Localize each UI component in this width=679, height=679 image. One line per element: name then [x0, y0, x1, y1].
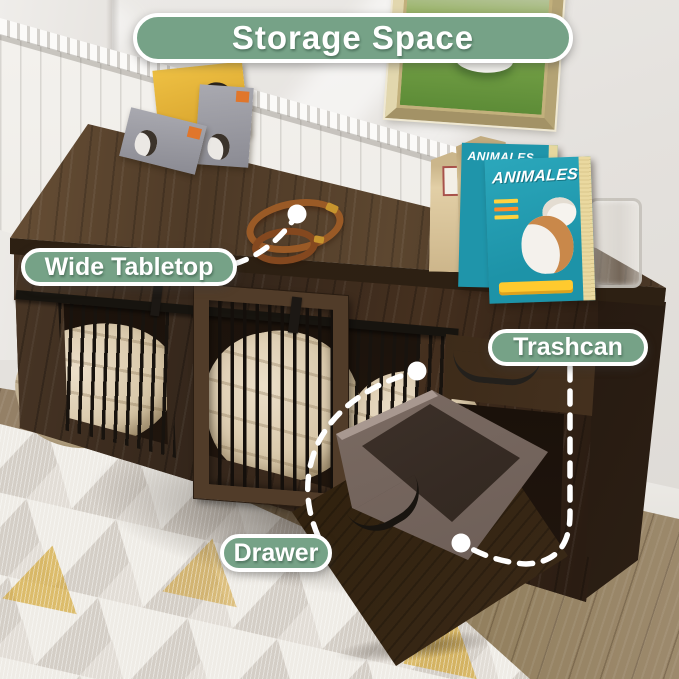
- wide-tabletop-arrow: [234, 219, 294, 264]
- callout-drawer: Drawer: [220, 534, 332, 572]
- tabletop-pointer-dot: [288, 205, 307, 224]
- banner-text: Storage Space: [232, 19, 474, 57]
- callout-text: Wide Tabletop: [45, 253, 214, 282]
- trashcan-arrow: [470, 367, 570, 564]
- callout-text: Trashcan: [513, 333, 623, 362]
- drawer-arrow: [308, 375, 404, 536]
- drawer-pointer-dot: [408, 362, 427, 381]
- callout-wide-tabletop: Wide Tabletop: [21, 248, 237, 286]
- callout-text: Drawer: [234, 539, 319, 568]
- product-annotation-image: ANIMALES ANIMALES Storage Space Wide Tab…: [0, 0, 679, 679]
- callout-trashcan: Trashcan: [488, 329, 648, 366]
- trashcan-pointer-dot: [452, 534, 471, 553]
- title-banner: Storage Space: [133, 13, 573, 63]
